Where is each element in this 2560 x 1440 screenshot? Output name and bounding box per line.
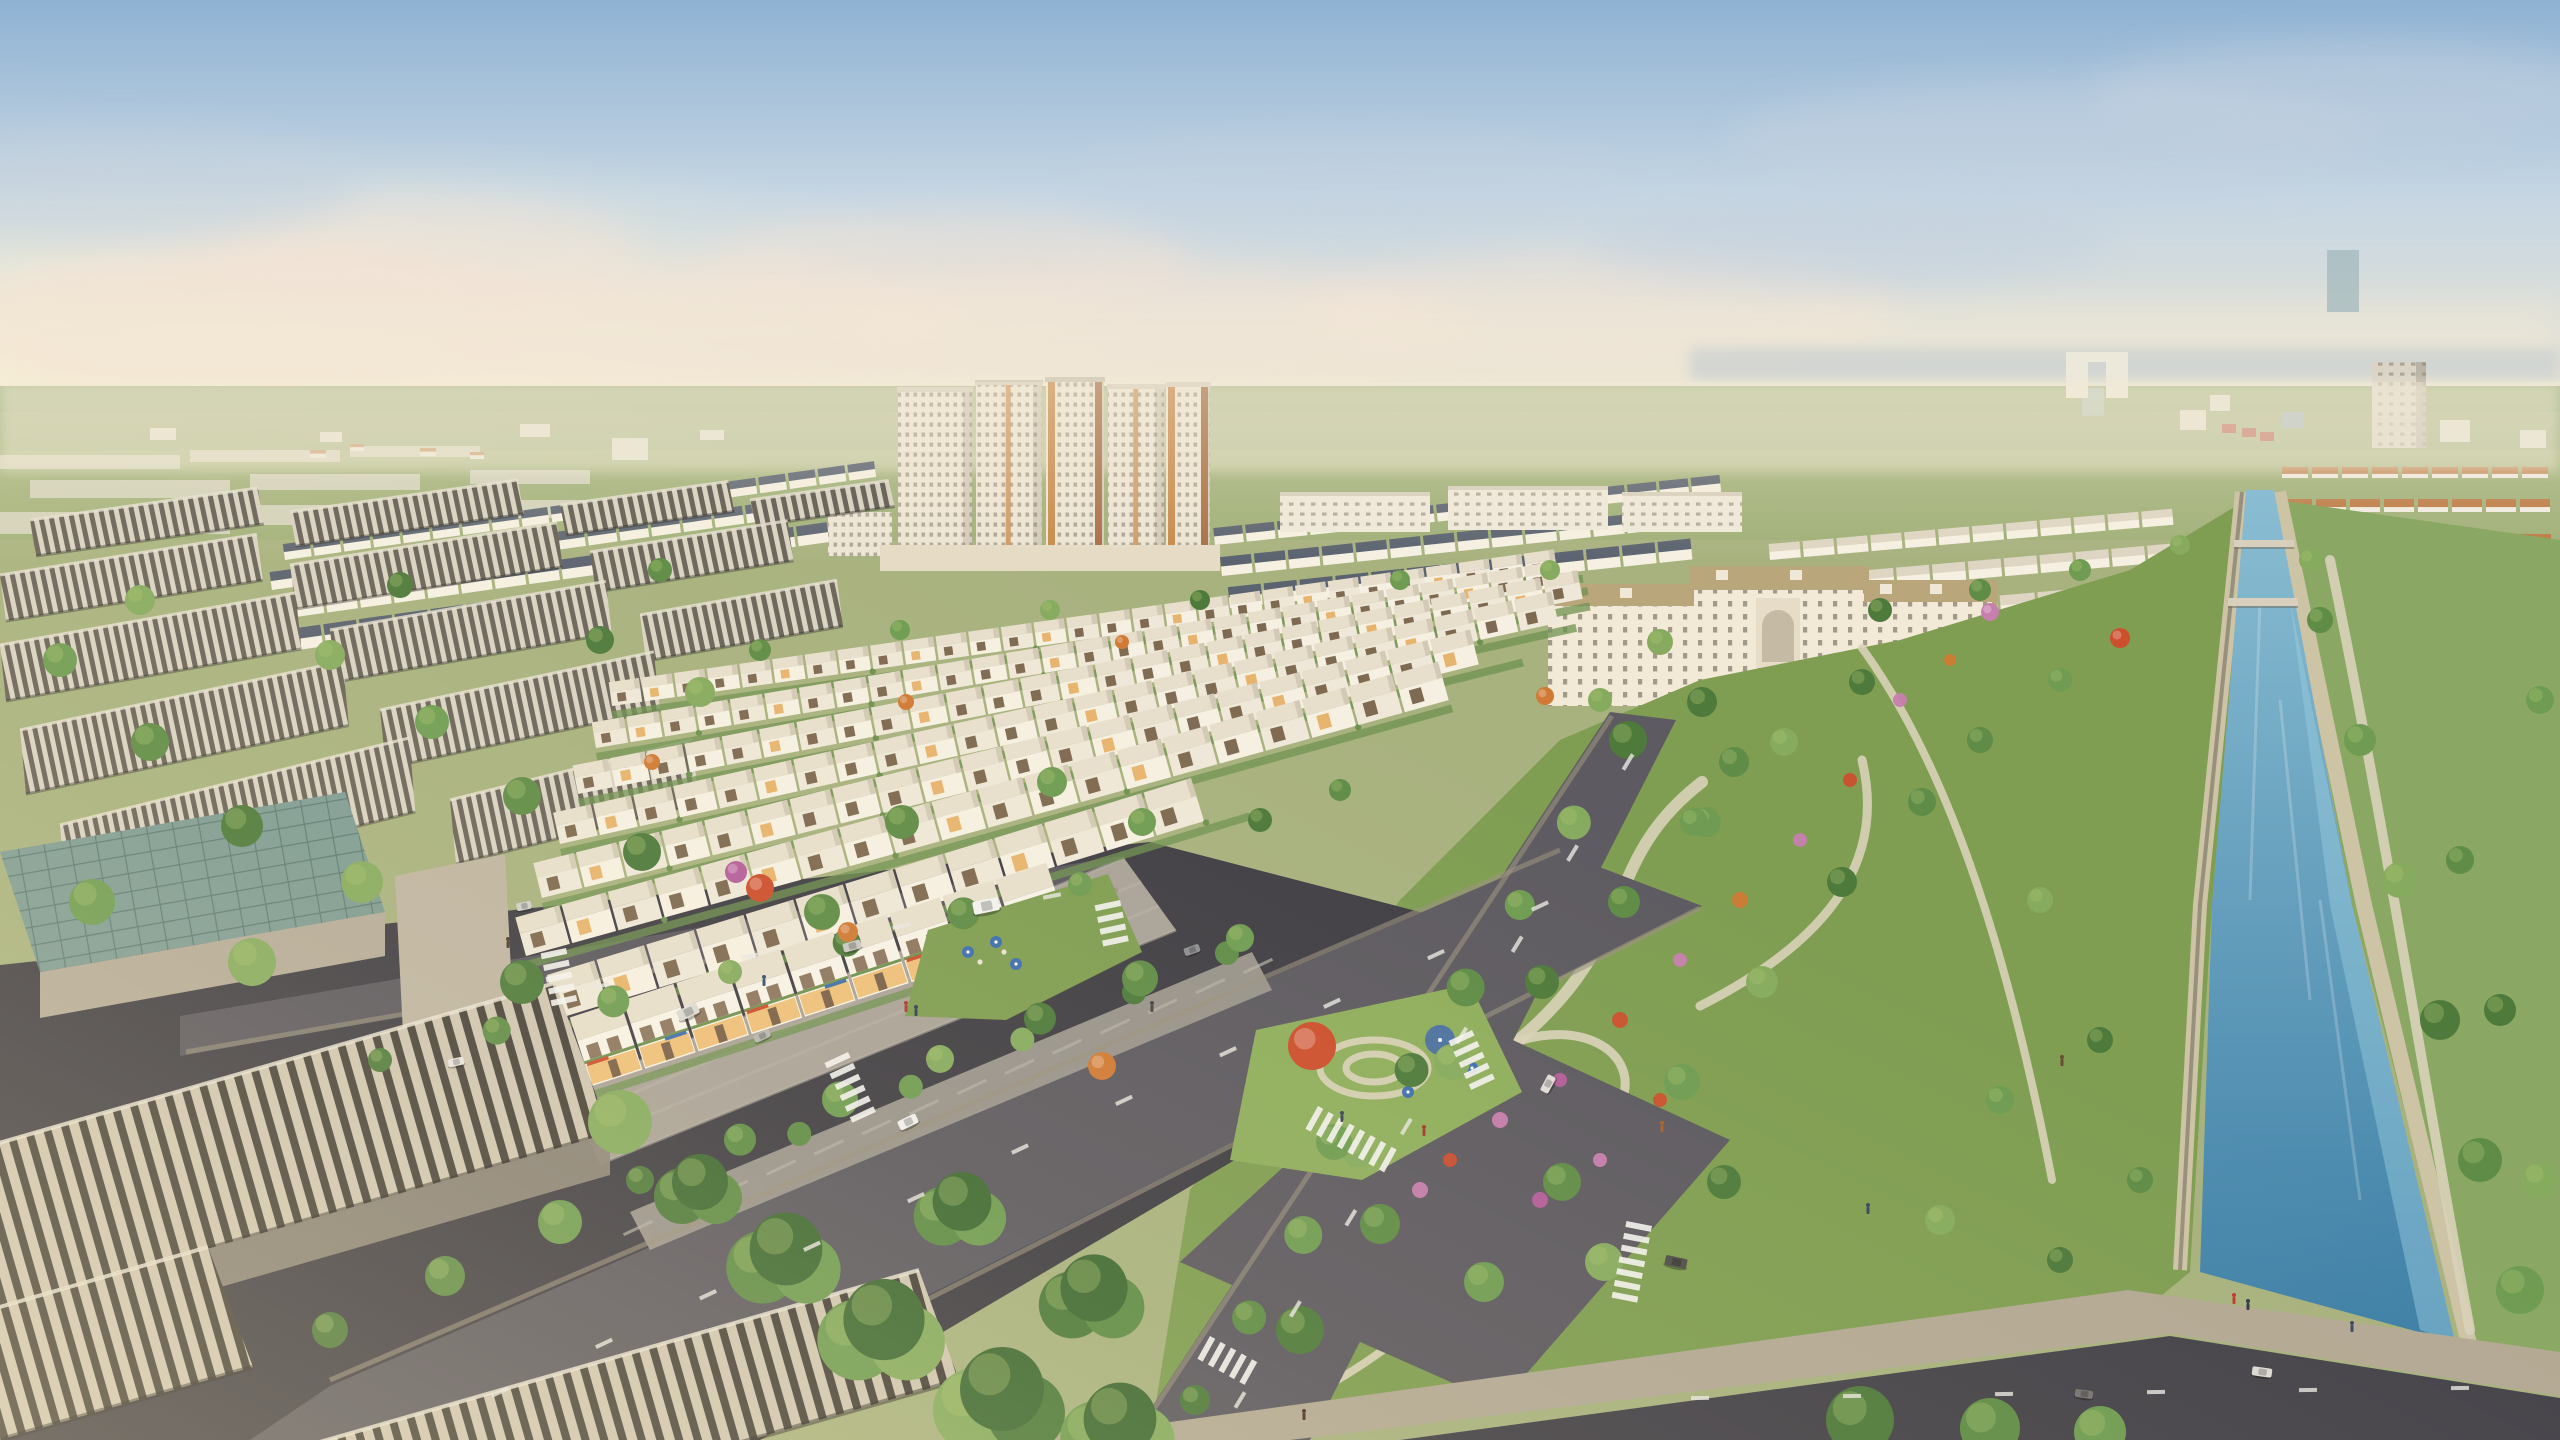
light-overlay-layer xyxy=(0,0,2560,1440)
scene-canvas xyxy=(0,0,2560,1440)
warm-light-overlay xyxy=(0,0,2560,1440)
aerial-city-render xyxy=(0,0,2560,1440)
